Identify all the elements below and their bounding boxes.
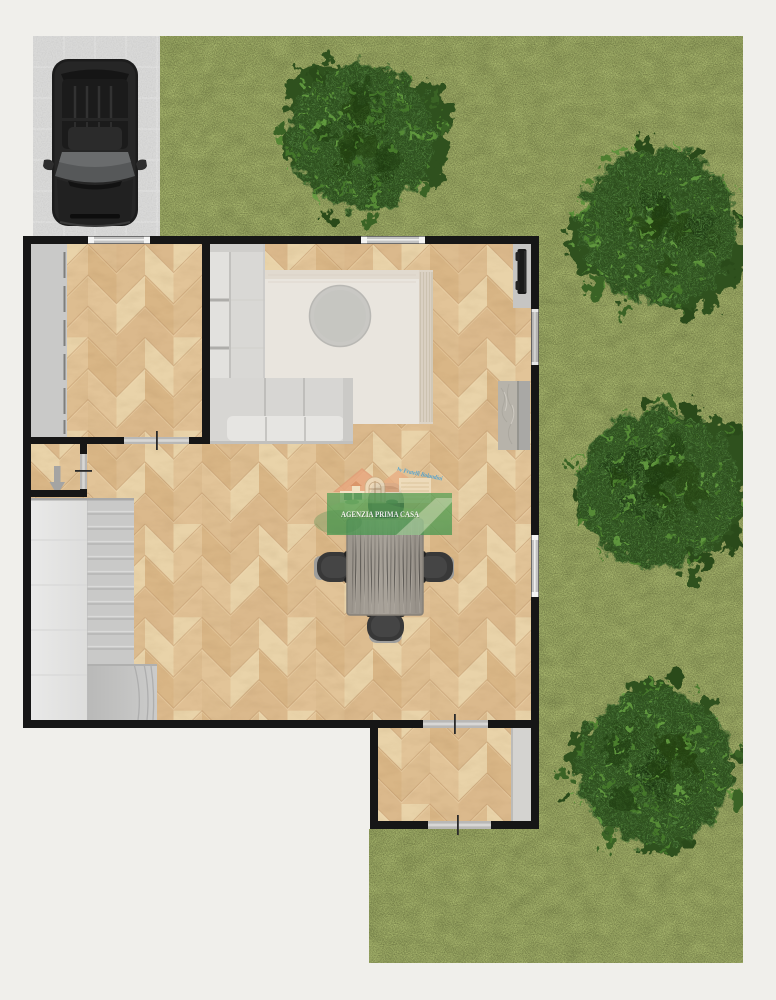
svg-text:AGENZIA PRIMA CASA: AGENZIA PRIMA CASA xyxy=(341,509,420,519)
